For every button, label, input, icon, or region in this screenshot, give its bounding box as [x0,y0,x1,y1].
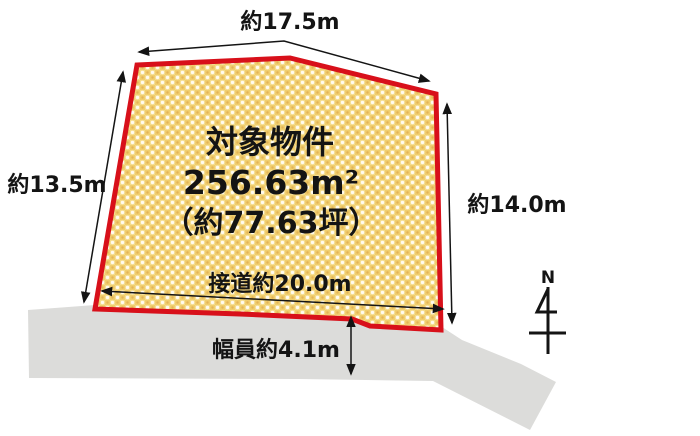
plot-title: 対象物件 [206,123,334,161]
plot-area-tsubo: （約77.63坪） [164,206,379,241]
north-compass: N [529,268,566,354]
dimension-label-right: 約14.0m [467,192,566,218]
north-label: N [541,268,555,288]
site-plan-diagram: 約17.5m 約13.5m 約14.0m 接道約20.0m 幅員約4.1m 対象… [0,0,700,436]
dimension-label-left: 約13.5m [7,172,106,198]
dimension-label-frontage: 接道約20.0m [208,271,351,297]
road-shape [28,305,556,430]
dimension-arrow-right [447,104,452,323]
site-plan-svg: 約17.5m 約13.5m 約14.0m 接道約20.0m 幅員約4.1m 対象… [0,0,700,436]
plot-area: 256.63m² [183,163,359,202]
dimension-label-road-width: 幅員約4.1m [212,337,340,363]
dimension-label-top: 約17.5m [240,9,339,35]
